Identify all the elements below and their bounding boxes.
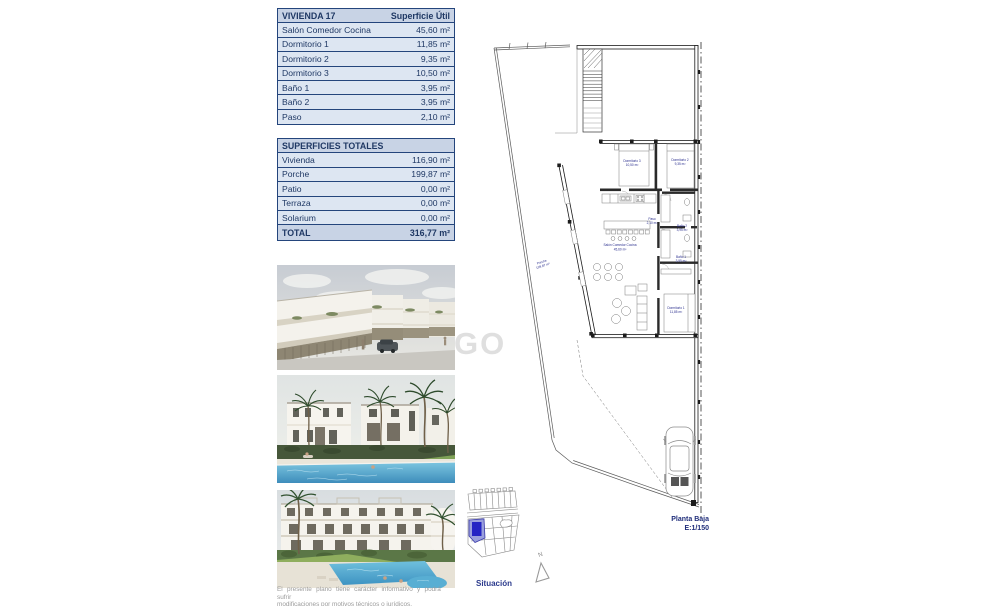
row-label: Vivienda <box>282 155 315 165</box>
situacion-label: Situación <box>476 579 512 588</box>
row-value: 0,00 m² <box>421 184 450 194</box>
table-row: Solarium0,00 m² <box>278 211 454 225</box>
floor-plan: Dormitorio 3 10,50 m² Dormitorio 2 9,35 … <box>480 30 720 540</box>
room-area-bano-2: 3,95 m² <box>677 228 688 232</box>
porch-planters <box>563 190 586 287</box>
disclaimer-line-1: El presente plano tiene carácter informa… <box>277 586 457 601</box>
row-label: Dormitorio 1 <box>282 39 329 49</box>
table-row: Dormitorio 111,85 m² <box>278 38 454 52</box>
row-value: 10,50 m² <box>416 68 450 78</box>
staircase <box>583 49 602 132</box>
table-column-header: Superficie Útil <box>391 11 450 21</box>
plan-caption-scale: E:1/150 <box>684 525 709 532</box>
plan-caption-title: Planta Baja <box>671 516 709 523</box>
table-row: Patio0,00 m² <box>278 182 454 196</box>
disclaimer-line-2: modificaciones por motivos técnicos o ju… <box>277 601 457 606</box>
row-value: 116,90 m² <box>412 155 450 165</box>
table-row: Dormitorio 29,35 m² <box>278 52 454 66</box>
buildings <box>281 498 455 554</box>
table-row: Baño 13,95 m² <box>278 81 454 95</box>
dining-furniture <box>593 263 622 280</box>
row-value: 3,95 m² <box>421 97 450 107</box>
row-label: Dormitorio 3 <box>282 68 329 78</box>
room-area-salon: 45,60 m² <box>614 248 627 252</box>
row-value: 0,00 m² <box>421 213 450 223</box>
table-row: Terraza0,00 m² <box>278 197 454 211</box>
north-label: N <box>538 552 544 559</box>
row-label: Salón Comedor Cocina <box>282 25 371 35</box>
row-label: Patio <box>282 184 302 194</box>
superficies-totales-table: SUPERFICIES TOTALES Vivienda116,90 m² Po… <box>277 138 455 241</box>
row-label: Solarium <box>282 213 316 223</box>
table-title: SUPERFICIES TOTALES <box>282 141 383 151</box>
total-row: TOTAL316,77 m² <box>278 225 454 239</box>
situacion-map: Situación <box>458 486 536 594</box>
row-value: 199,87 m² <box>411 169 450 179</box>
table-row: Porche199,87 m² <box>278 168 454 182</box>
buildings <box>287 403 455 450</box>
render-townhouses-photo <box>277 265 455 370</box>
row-label: Paso <box>282 112 302 122</box>
row-label: Baño 1 <box>282 83 309 93</box>
table-header-row: VIVIENDA 17 Superficie Útil <box>278 9 454 23</box>
north-arrow: N <box>530 547 556 587</box>
table-row: Paso2,10 m² <box>278 110 454 124</box>
table-title: VIVIENDA 17 <box>282 11 335 21</box>
row-label: Dormitorio 2 <box>282 54 329 64</box>
room-label-salon: Salón Comedor Cocina <box>604 243 637 247</box>
row-label: TOTAL <box>282 228 311 238</box>
row-label: Porche <box>282 169 309 179</box>
table-row: Baño 23,95 m² <box>278 95 454 109</box>
north-arrow-icon <box>536 563 549 582</box>
car-top-view <box>664 427 696 496</box>
row-value: 45,60 m² <box>416 25 450 35</box>
row-label: Baño 2 <box>282 97 309 107</box>
row-value: 0,00 m² <box>421 198 450 208</box>
lounge-furniture <box>612 284 648 330</box>
room-area-paso: 2,10 m² <box>647 221 658 225</box>
pedestrian <box>444 337 447 346</box>
room-area-dormitorio-1: 11,85 m² <box>670 310 682 314</box>
row-label: Terraza <box>282 198 311 208</box>
render-apartments-photo <box>277 490 455 588</box>
room-area-dormitorio-3: 10,50 m² <box>626 163 639 167</box>
table-header-row: SUPERFICIES TOTALES <box>278 139 454 153</box>
render-pool-photo <box>277 375 455 483</box>
table-row: Salón Comedor Cocina45,60 m² <box>278 23 454 37</box>
room-area-dormitorio-2: 9,35 m² <box>675 162 686 166</box>
pedestrian <box>361 339 364 349</box>
plan-caption: Planta Baja E:1/150 <box>671 516 709 532</box>
row-value: 2,10 m² <box>421 112 450 122</box>
vivienda-area-table: VIVIENDA 17 Superficie Útil Salón Comedo… <box>277 8 455 125</box>
plan-sheet: VIVIENDA 17 Superficie Útil Salón Comedo… <box>0 0 1001 606</box>
row-value: 3,95 m² <box>421 83 450 93</box>
table-row: Dormitorio 310,50 m² <box>278 67 454 81</box>
porch-dashed-boundary <box>577 340 672 497</box>
disclaimer-text: El presente plano tiene carácter informa… <box>277 586 457 606</box>
row-value: 11,85 m² <box>417 39 450 49</box>
situacion-highlight-inner <box>472 522 482 536</box>
table-row: Vivienda116,90 m² <box>278 153 454 167</box>
room-area-bano-1: 3,95 m² <box>676 259 687 263</box>
row-value: 9,35 m² <box>421 54 450 64</box>
row-value: 316,77 m² <box>410 228 450 238</box>
